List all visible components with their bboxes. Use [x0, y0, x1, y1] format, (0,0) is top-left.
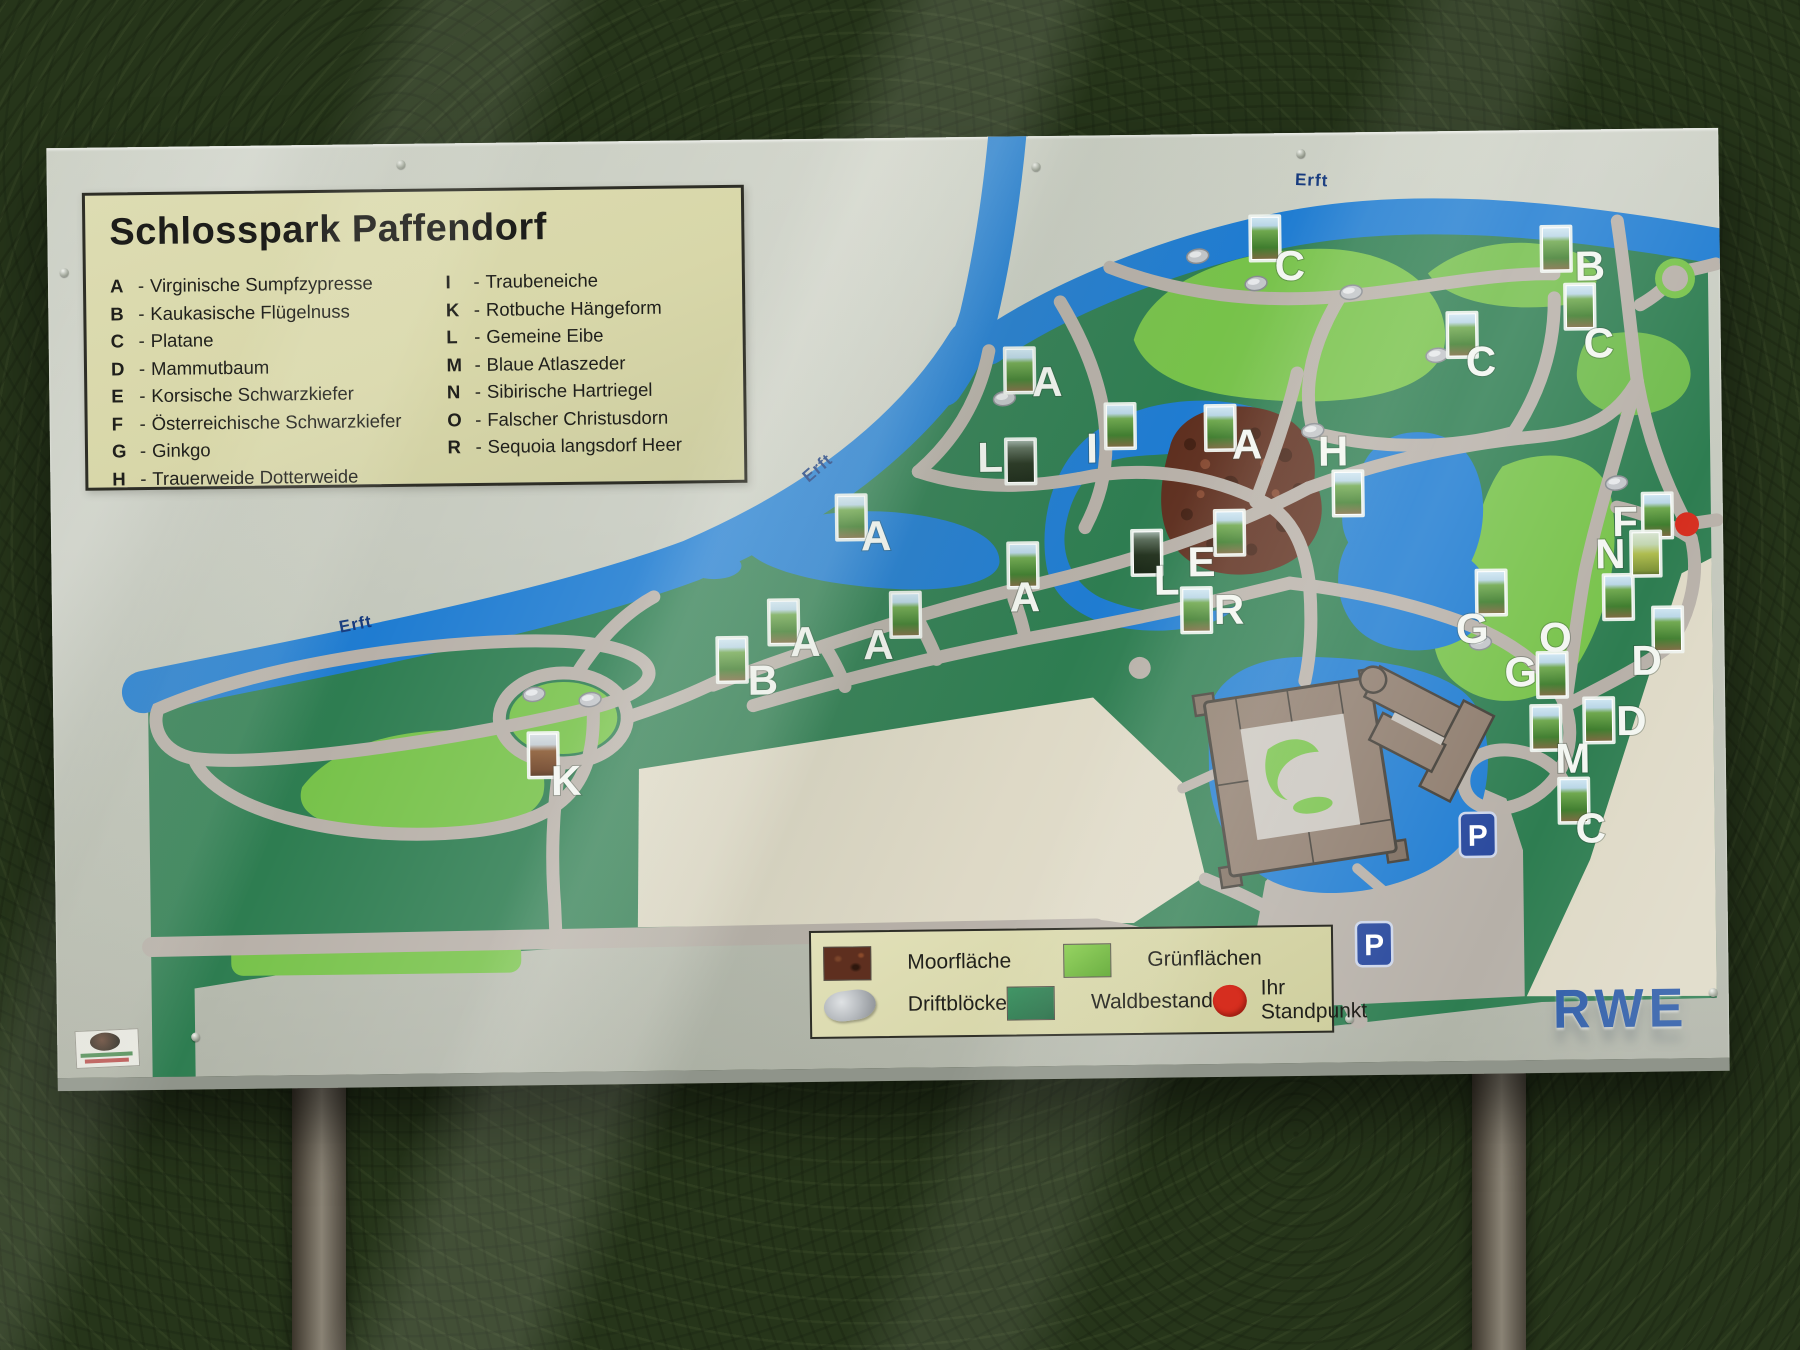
species-dash: - [134, 409, 152, 437]
map-letter-K: K [551, 757, 582, 804]
species-key: R [447, 433, 469, 461]
sign-title: Schlosspark Paffendorf [109, 204, 721, 254]
screw [1709, 988, 1718, 997]
species-name: Mammutbaum [151, 353, 270, 382]
tree-photo-marker-N [1629, 530, 1663, 578]
map-letter-C: C [1274, 242, 1305, 289]
standpoint-label: Ihr Standpunkt [1261, 975, 1368, 1024]
map-letter-N: N [1595, 530, 1626, 577]
maker-sticker-logo [90, 1032, 121, 1051]
species-columns: A-Virginische SumpfzypresseB-Kaukasische… [110, 265, 725, 492]
species-item: A-Virginische Sumpfzypresse [110, 268, 446, 300]
map-letter-A: A [790, 618, 821, 665]
tree-photo-marker-B [715, 636, 749, 684]
species-item: O-Falscher Christusdorn [447, 402, 724, 433]
moor-swatch [823, 946, 871, 981]
map-letter-A: A [1232, 420, 1263, 467]
sign-post-left [292, 1046, 346, 1350]
species-name: Traubeneiche [485, 267, 598, 296]
lawn-label: Grünflächen [1147, 946, 1262, 971]
tree-photo-marker-A [889, 591, 923, 639]
species-name: Sequoia langsdorf Heer [487, 431, 682, 461]
photo-of-park-map-sign: CBCCAIAHLAELRAAABKGOGMCDDFN Erft Erft Er… [0, 0, 1800, 1350]
screw [60, 268, 69, 277]
maker-sticker [74, 1028, 140, 1069]
tree-photo-marker-R [1180, 586, 1214, 634]
species-key: N [447, 378, 469, 406]
map-letter-C: C [1466, 338, 1497, 385]
species-name: Ginkgo [152, 436, 211, 464]
map-letter-A: A [863, 621, 894, 668]
species-dash: - [468, 323, 486, 351]
svg-text:P: P [1364, 929, 1384, 962]
screw [396, 160, 405, 169]
species-dash: - [132, 299, 150, 327]
species-list-right: I-TraubeneicheK-Rotbuche HängeformL-Geme… [445, 265, 724, 488]
species-dash: - [469, 433, 487, 461]
map-letter-C: C [1583, 319, 1614, 366]
screw [1032, 162, 1041, 171]
parking-icon-lower: P [1356, 922, 1393, 966]
map-letter-B: B [747, 656, 778, 703]
moor-label: Moorfläche [907, 949, 1063, 975]
species-item: K-Rotbuche Hängeform [446, 293, 723, 324]
species-item: R-Sequoia langsdorf Heer [447, 430, 724, 461]
species-dash: - [133, 354, 151, 382]
standpoint-swatch [1213, 985, 1247, 1017]
tree-photo-marker-E [1213, 509, 1247, 557]
species-name: Korsische Schwarzkiefer [151, 380, 354, 410]
map-letter-G: G [1456, 605, 1489, 652]
tree-photo-marker-O [1602, 573, 1636, 621]
species-dash: - [132, 327, 150, 355]
maker-sticker-line [85, 1058, 129, 1064]
map-legend-row-2: Driftblöcke Waldbestand Ihr Standpunkt [824, 979, 1320, 1027]
species-key: I [445, 268, 467, 296]
species-name: Kaukasische Flügelnuss [150, 297, 350, 327]
map-letter-D: D [1616, 697, 1647, 744]
species-item: H-Trauerweide Dotterweide [112, 461, 448, 493]
park-map-sign: CBCCAIAHLAELRAAABKGOGMCDDFN Erft Erft Er… [46, 128, 1729, 1091]
species-dash: - [132, 272, 150, 300]
map-letter-L: L [977, 434, 1003, 481]
map-letter-C: C [1575, 804, 1606, 851]
species-item: F-Österreichische Schwarzkiefer [112, 406, 448, 438]
map-letter-E: E [1187, 538, 1216, 585]
map-legend-panel: Moorfläche Grünflächen Driftblöcke Waldb… [809, 925, 1334, 1039]
map-legend-row-1: Moorfläche Grünflächen [823, 937, 1319, 985]
species-key: M [446, 351, 468, 379]
species-name: Sibirische Hartriegel [487, 376, 653, 406]
river-label-top: Erft [1295, 170, 1329, 190]
screw [1296, 149, 1305, 158]
species-key: L [446, 323, 468, 351]
map-letter-L: L [1154, 556, 1180, 603]
species-item: G-Ginkgo [112, 433, 448, 465]
species-name: Gemeine Eibe [486, 321, 604, 350]
tree-photo-marker-D [1582, 696, 1616, 744]
lawn-swatch [1063, 943, 1111, 978]
species-name: Virginische Sumpfzypresse [150, 269, 373, 299]
forest-swatch [1007, 986, 1055, 1021]
species-key: K [446, 296, 468, 324]
species-dash: - [133, 382, 151, 410]
species-name: Österreichische Schwarzkiefer [152, 406, 402, 437]
svg-text:P: P [1468, 820, 1488, 853]
species-name: Rotbuche Hängeform [486, 293, 662, 323]
species-item: C-Platane [110, 323, 446, 355]
map-letter-H: H [1318, 427, 1349, 474]
species-key: O [447, 406, 469, 434]
map-letter-I: I [1086, 424, 1098, 471]
driftblock-swatch [822, 987, 878, 1024]
forest-label: Waldbestand [1091, 989, 1213, 1014]
tree-photo-marker-B [1539, 225, 1573, 273]
map-letter-G: G [1504, 648, 1537, 695]
map-letter-A: A [1009, 573, 1040, 620]
species-name: Blaue Atlaszeder [486, 349, 625, 378]
species-key: E [111, 382, 133, 410]
species-dash: - [469, 378, 487, 406]
species-item: B-Kaukasische Flügelnuss [110, 296, 446, 328]
species-key: B [110, 300, 132, 328]
species-key: G [112, 437, 134, 465]
species-dash: - [134, 464, 152, 492]
tree-photo-marker-I [1103, 402, 1137, 450]
driftblock-label: Driftblöcke [908, 992, 1007, 1017]
species-item: E-Korsische Schwarzkiefer [111, 378, 447, 410]
species-dash: - [134, 437, 152, 465]
species-dash: - [469, 405, 487, 433]
species-name: Falscher Christusdorn [487, 403, 668, 433]
screw [191, 1032, 200, 1041]
species-dash: - [468, 350, 486, 378]
map-letter-D: D [1631, 637, 1662, 684]
species-key: D [111, 355, 133, 383]
map-letter-A: A [861, 512, 892, 559]
tree-photo-marker-L [1004, 437, 1038, 485]
species-key: C [110, 327, 132, 355]
species-item: L-Gemeine Eibe [446, 320, 723, 351]
species-key: F [112, 410, 134, 438]
species-key: A [110, 272, 132, 300]
species-legend-panel: Schlosspark Paffendorf A-Virginische Sum… [82, 185, 748, 491]
species-name: Platane [150, 326, 213, 354]
tree-photo-marker-H [1331, 469, 1365, 517]
rwe-logo: RWE [1553, 976, 1724, 1041]
species-item: D-Mammutbaum [111, 351, 447, 383]
species-dash: - [468, 295, 486, 323]
sign-post-right [1472, 1046, 1526, 1350]
species-name: Trauerweide Dotterweide [152, 462, 358, 492]
species-item: I-Traubeneiche [445, 265, 722, 296]
tree-photo-marker-G [1536, 651, 1570, 699]
map-letter-R: R [1214, 586, 1245, 633]
species-item: N-Sibirische Hartriegel [447, 375, 724, 406]
species-key: H [112, 465, 134, 493]
map-letter-A: A [1032, 358, 1063, 405]
species-list-left: A-Virginische SumpfzypresseB-Kaukasische… [110, 268, 448, 492]
species-item: M-Blaue Atlaszeder [446, 347, 723, 378]
species-dash: - [467, 268, 485, 296]
parking-icon-upper: P [1460, 813, 1497, 857]
